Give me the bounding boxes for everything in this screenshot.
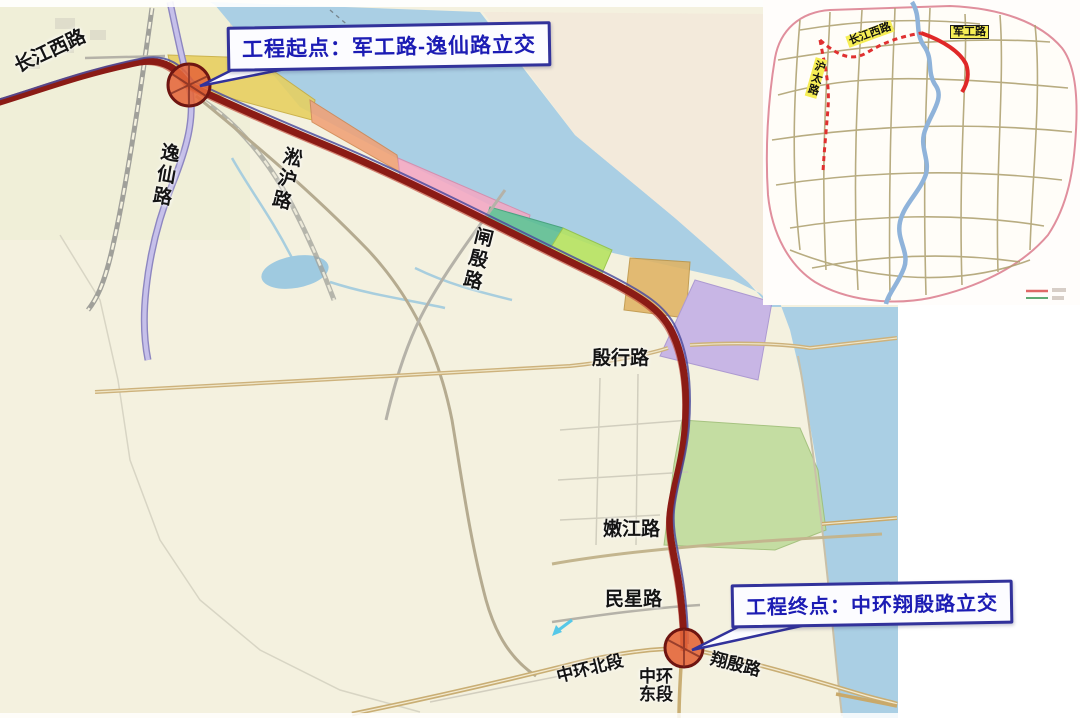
label-yinhang-road: 殷行路 [592, 349, 649, 369]
legend-label-smudge [1052, 288, 1066, 292]
legend-label-smudge [1052, 296, 1064, 300]
end-callout: 工程终点：中环翔殷路立交 [731, 580, 1014, 629]
top-margin [0, 0, 763, 7]
bottom-margin [0, 713, 1080, 718]
label-nenjiang-road: 嫩江路 [603, 520, 660, 540]
northwest-land-tint [0, 0, 250, 240]
label-minxing-road: 民星路 [605, 590, 662, 610]
start-callout: 工程起点：军工路-逸仙路立交 [227, 21, 552, 72]
inset-label-jungong: 军工路 [950, 25, 989, 39]
label-zhonghuan-east: 中环东段 [636, 668, 676, 704]
project-map-figure: 长江西路 逸仙路 淞沪路 闸殷路 殷行路 嫩江路 民星路 中环北段 中环东段 翔… [0, 0, 1080, 718]
right-margin [898, 302, 1080, 718]
